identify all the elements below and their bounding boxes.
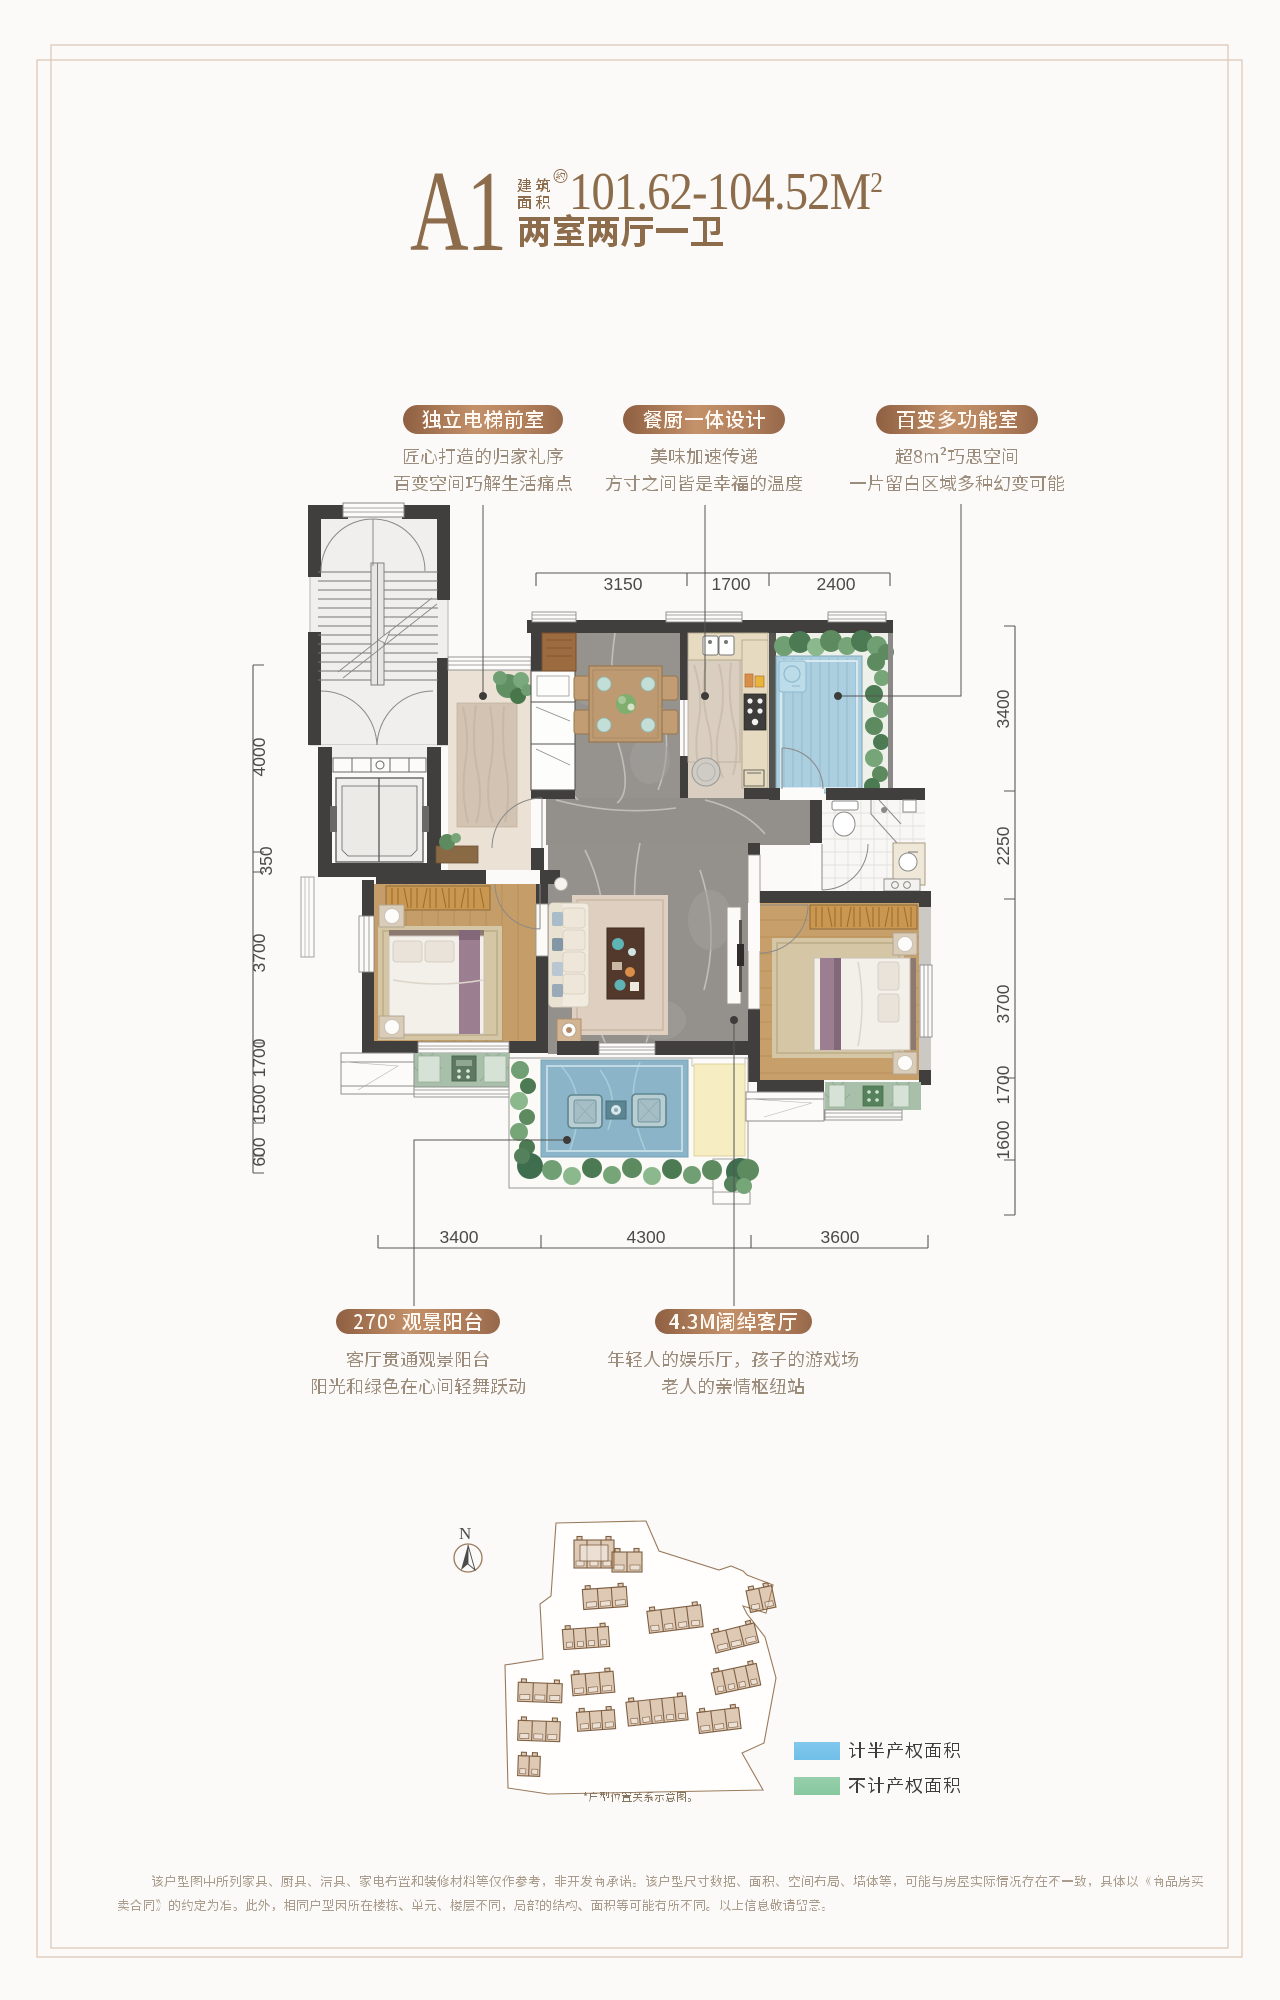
svg-text:1500: 1500 — [249, 1084, 269, 1123]
svg-text:4300: 4300 — [627, 1227, 666, 1247]
svg-text:4000: 4000 — [249, 737, 269, 776]
svg-text:2250: 2250 — [993, 826, 1013, 865]
svg-text:2400: 2400 — [817, 574, 856, 594]
svg-text:1600: 1600 — [993, 1120, 1013, 1159]
svg-text:350: 350 — [256, 846, 276, 875]
svg-text:3700: 3700 — [993, 984, 1013, 1023]
svg-text:3400: 3400 — [993, 689, 1013, 728]
svg-text:3700: 3700 — [249, 933, 269, 972]
svg-text:1700: 1700 — [249, 1038, 269, 1077]
svg-text:3600: 3600 — [821, 1227, 860, 1247]
svg-text:3400: 3400 — [440, 1227, 479, 1247]
svg-text:3150: 3150 — [604, 574, 643, 594]
svg-text:1700: 1700 — [712, 574, 751, 594]
svg-text:1700: 1700 — [993, 1065, 1013, 1104]
svg-text:600: 600 — [249, 1137, 269, 1166]
